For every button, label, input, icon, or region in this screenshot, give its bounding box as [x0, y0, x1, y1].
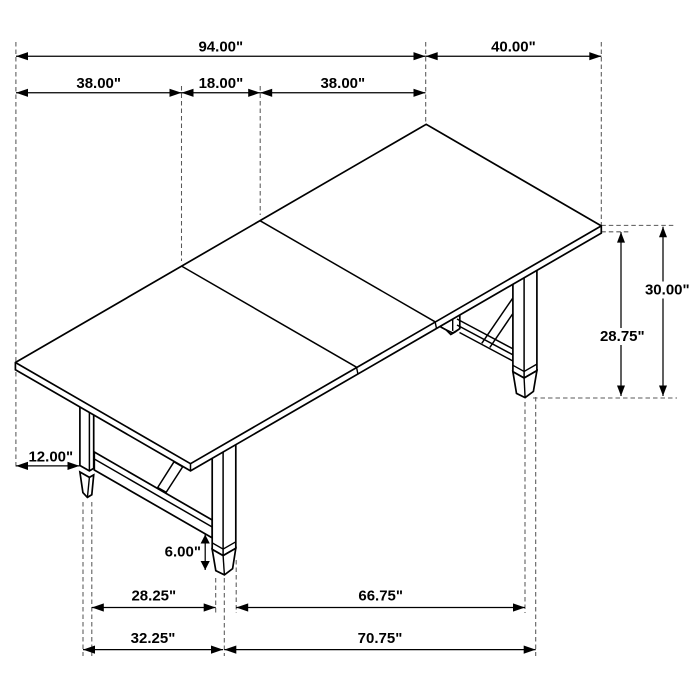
- svg-text:28.25": 28.25": [131, 588, 176, 605]
- svg-text:38.00": 38.00": [320, 75, 365, 92]
- svg-text:94.00": 94.00": [198, 39, 243, 56]
- svg-text:32.25": 32.25": [131, 630, 176, 647]
- svg-text:70.75": 70.75": [358, 630, 403, 647]
- svg-text:18.00": 18.00": [199, 75, 244, 92]
- svg-text:38.00": 38.00": [76, 75, 121, 92]
- svg-text:40.00": 40.00": [491, 39, 536, 56]
- svg-text:30.00": 30.00": [645, 282, 690, 299]
- svg-text:6.00": 6.00": [165, 544, 201, 561]
- svg-text:28.75": 28.75": [600, 328, 645, 345]
- svg-text:12.00": 12.00": [28, 449, 73, 466]
- svg-text:66.75": 66.75": [358, 588, 403, 605]
